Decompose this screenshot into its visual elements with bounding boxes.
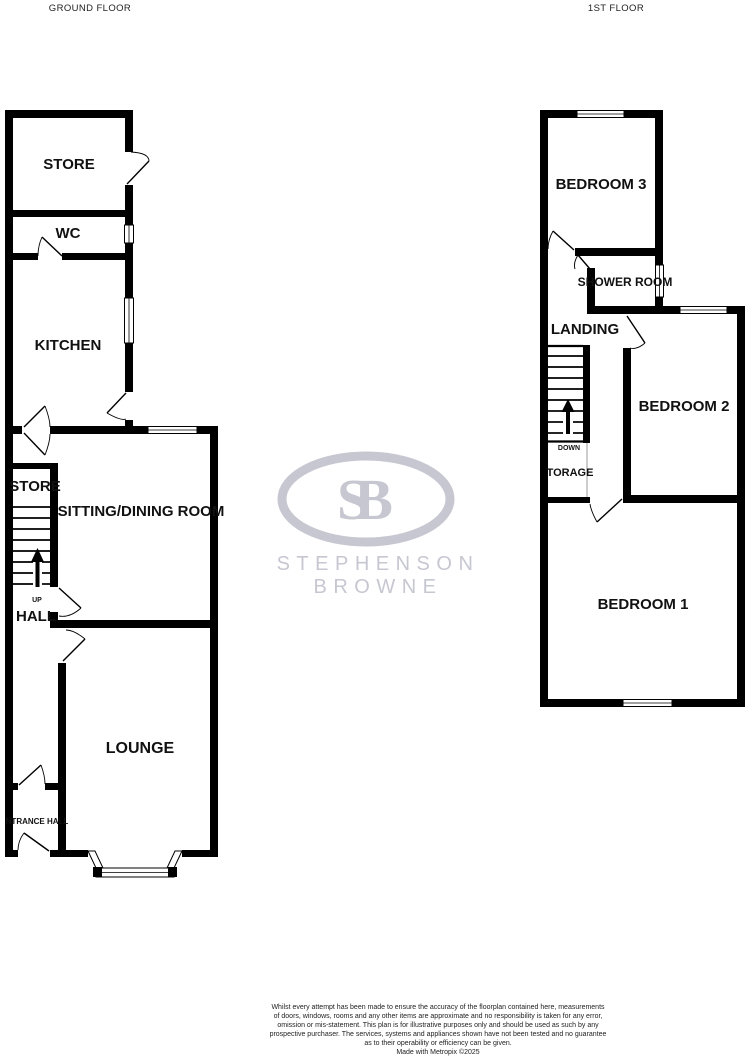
bay-window <box>88 851 182 877</box>
room-label-shower-room: SHOWER ROOM <box>578 275 673 289</box>
room-label-bedroom1: BEDROOM 1 <box>598 596 689 613</box>
room-label-hall: HALL <box>16 608 56 625</box>
disclaimer-line: prospective purchaser. The services, sys… <box>238 1030 638 1039</box>
room-label-bedroom2: BEDROOM 2 <box>639 398 730 415</box>
room-label-entrance-hall: NTRANCE HALL <box>6 817 69 826</box>
stairs-up-label: UP <box>32 597 42 604</box>
floorplan-page: SB STEPHENSON BROWNE GROUND FLOOR 1ST FL… <box>0 0 752 1056</box>
ground-floor-stairs <box>13 507 50 587</box>
ground-floor-plan: STORE WC KITCHEN STORE SITTING/DINING RO… <box>5 110 224 877</box>
first-floor-plan: BEDROOM 3 SHOWER ROOM LANDING DOWN TORAG… <box>540 110 745 707</box>
floorplans-svg: STORE WC KITCHEN STORE SITTING/DINING RO… <box>0 0 752 1056</box>
room-label-landing: LANDING <box>551 321 619 338</box>
disclaimer-line: of doors, windows, rooms and any other i… <box>238 1012 638 1021</box>
up-arrow-icon <box>31 548 44 587</box>
room-label-bedroom3: BEDROOM 3 <box>556 176 647 193</box>
room-label-sitting-dining: SITTING/DINING ROOM <box>58 503 225 520</box>
ground-floor-windows <box>88 225 197 877</box>
room-label-kitchen: KITCHEN <box>35 337 102 354</box>
room-label-store-top: STORE <box>43 156 94 173</box>
room-label-wc: WC <box>56 225 81 242</box>
disclaimer-line: Whilst every attempt has been made to en… <box>238 1003 638 1012</box>
disclaimer-line: as to their operability or efficiency ca… <box>238 1039 638 1048</box>
disclaimer-line: omission or mis-statement. This plan is … <box>238 1021 638 1030</box>
stairs-down-label: DOWN <box>558 445 580 452</box>
room-label-storage: TORAGE <box>547 467 594 479</box>
disclaimer: Whilst every attempt has been made to en… <box>238 1003 638 1056</box>
room-label-store-mid: STORE <box>9 478 60 495</box>
disclaimer-credit: Made with Metropix ©2025 <box>238 1048 638 1056</box>
room-label-lounge: LOUNGE <box>106 740 175 757</box>
down-arrow-icon <box>562 399 575 434</box>
